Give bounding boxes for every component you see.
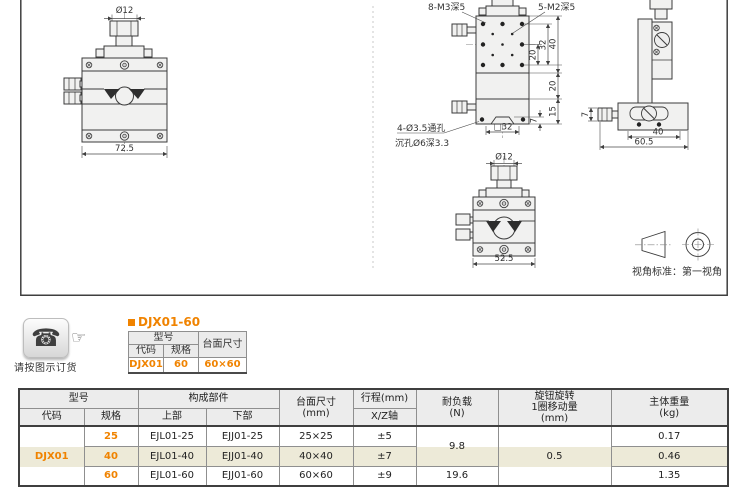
top-dim-span: 32 [539, 40, 549, 51]
top-dim-pitch: 20 [529, 50, 539, 61]
ordering-size: 60×60 [199, 358, 247, 373]
spec-spec: 40 [84, 446, 138, 466]
spec-header-load: 耐负载 (N) [416, 389, 498, 426]
spec-header-stroke: 行程(mm) [353, 389, 416, 408]
spec-header-spec: 规格 [84, 408, 138, 426]
spec-knob-travel: 0.5 [498, 426, 611, 486]
side-dim-body: 40 [653, 128, 664, 138]
bottom-view-drawing: Ø12 52.5 [456, 152, 535, 269]
spec-stroke: ±5 [353, 426, 416, 446]
spec-header-knob-travel: 旋钮旋转 1圈移动量 (mm) [498, 389, 611, 426]
ordering-caption: 请按图示订货 [14, 359, 126, 374]
ordering-spec: 60 [164, 358, 199, 373]
spec-header-parts: 构成部件 [138, 389, 279, 408]
phone-glyph: ☎ [31, 324, 61, 352]
front-dim-diameter: Ø12 [116, 5, 134, 16]
spec-upper: EJL01-60 [138, 466, 206, 486]
spec-lower: EJJ01-60 [206, 466, 279, 486]
spec-header-axis: X/Z轴 [353, 408, 416, 426]
spec-spec: 25 [84, 426, 138, 446]
spec-upper: EJL01-25 [138, 426, 206, 446]
top-label-m3: 8-M3深5 [428, 2, 465, 13]
spec-size: 40×40 [279, 446, 353, 466]
ordering-header-size: 台面尺寸 [199, 332, 247, 358]
top-dim-base: 15 [549, 106, 559, 117]
spec-load-25-40: 9.8 [416, 426, 498, 466]
top-label-thru-hole: 4-Ø3.5通孔 [397, 123, 445, 134]
spec-load-60: 19.6 [416, 466, 498, 486]
orange-bullet-icon [128, 319, 135, 326]
spec-row-60: 60 EJL01-60 EJJ01-60 60×60 ±9 19.6 1.35 [19, 466, 728, 486]
spec-header-code: 代码 [19, 408, 84, 426]
ordering-header-code: 代码 [129, 345, 164, 358]
side-view-drawing: 7 40 60.5 [581, 0, 688, 150]
projection-note: 视角标准：第一视角 [632, 265, 722, 278]
first-angle-projection-icon: 视角标准：第一视角 [632, 229, 722, 279]
spec-header-weight: 主体重量 (kg) [611, 389, 728, 426]
top-view-drawing: 8-M3深5 5-M2深5 20 32 40 20 15 7 [395, 0, 575, 149]
side-dim-knob: 7 [581, 112, 591, 117]
spec-stroke: ±9 [353, 466, 416, 486]
spec-upper: EJL01-40 [138, 446, 206, 466]
spec-code: DJX01 [19, 426, 84, 486]
spec-header-model: 型号 [19, 389, 138, 408]
spec-weight: 0.17 [611, 426, 728, 446]
catalog-page: Ø12 72.5 [0, 0, 750, 500]
spec-spec: 60 [84, 466, 138, 486]
spec-header-size: 台面尺寸 (mm) [279, 389, 353, 426]
spec-header-lower: 下部 [206, 408, 279, 426]
side-dim-total: 60.5 [635, 138, 654, 148]
ordering-header-spec: 规格 [164, 345, 199, 358]
ordering-header-model: 型号 [129, 332, 199, 345]
front-view-drawing: Ø12 72.5 [64, 5, 167, 158]
top-label-counterbore: 沉孔Ø6深3.3 [395, 138, 449, 149]
spec-header-upper: 上部 [138, 408, 206, 426]
top-label-m2: 5-M2深5 [538, 2, 575, 13]
top-dim-height: 40 [549, 39, 559, 50]
spec-lower: EJJ01-25 [206, 426, 279, 446]
spec-table: 型号 构成部件 台面尺寸 (mm) 行程(mm) 耐负载 (N) 旋钮旋转 1圈… [18, 388, 729, 487]
pointing-finger-icon: ☞ [71, 328, 86, 348]
drawing-panel: Ø12 72.5 [0, 0, 750, 300]
ordering-code: DJX01 [129, 358, 164, 373]
top-dim-square: □32 [494, 123, 513, 133]
top-dim-mid: 20 [549, 81, 559, 92]
ordering-table: 型号 台面尺寸 代码 规格 DJX01 60 60×60 [128, 331, 247, 374]
bottom-dim-diameter: Ø12 [495, 152, 513, 163]
spec-size: 25×25 [279, 426, 353, 446]
bottom-dim-width: 52.5 [495, 254, 514, 264]
top-dim-dovetail: 7 [530, 118, 540, 123]
phone-icon: ☎ [23, 318, 69, 358]
spec-row-40: 40 EJL01-40 EJJ01-40 40×40 ±7 0.46 [19, 446, 728, 466]
ordering-row: DJX01 60 60×60 [129, 358, 247, 373]
spec-weight: 1.35 [611, 466, 728, 486]
ordering-title-text: DJX01-60 [138, 315, 200, 329]
spec-size: 60×60 [279, 466, 353, 486]
ordering-title: DJX01-60 [128, 315, 200, 329]
spec-row-25: DJX01 25 EJL01-25 EJJ01-25 25×25 ±5 9.8 … [19, 426, 728, 446]
spec-stroke: ±7 [353, 446, 416, 466]
spec-lower: EJJ01-40 [206, 446, 279, 466]
front-dim-width: 72.5 [115, 144, 134, 154]
spec-weight: 0.46 [611, 446, 728, 466]
